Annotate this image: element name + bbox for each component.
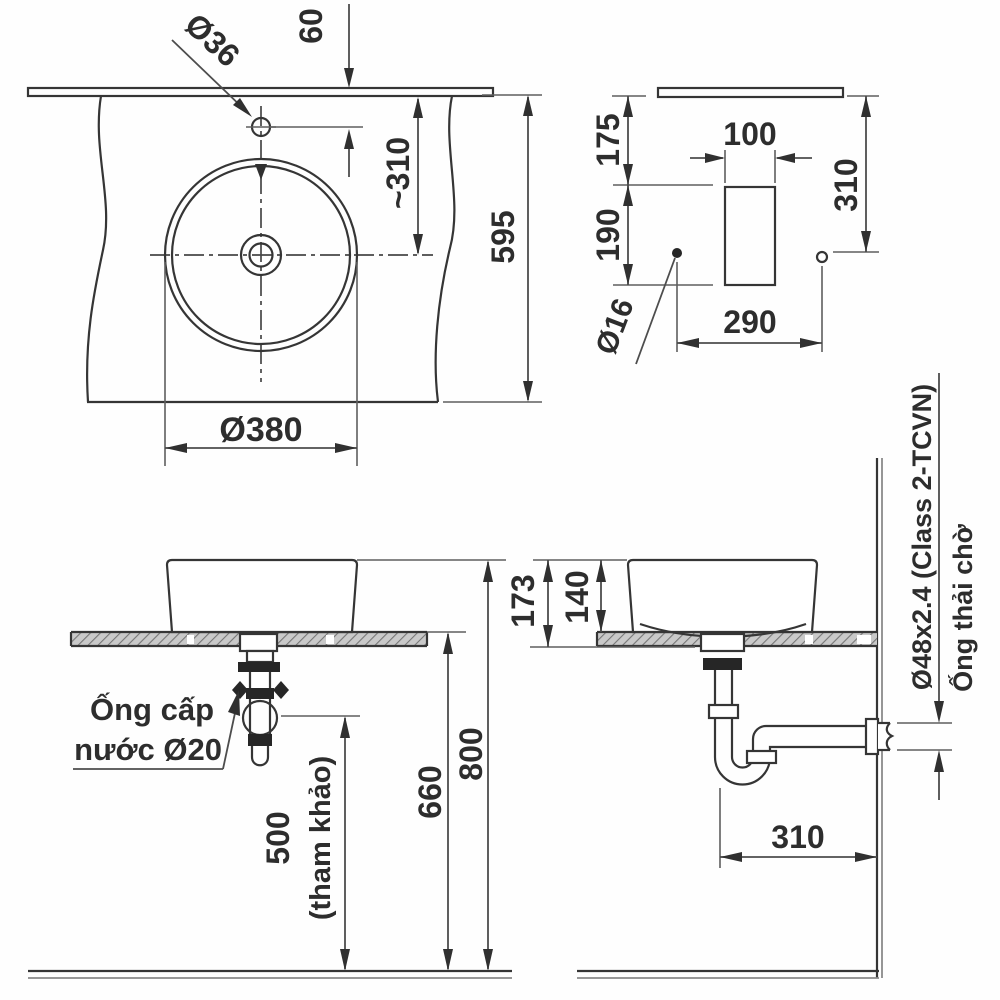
- arrow-140-down: [596, 610, 606, 632]
- leader-hole-dia: [636, 258, 675, 364]
- trap-nut-lower: [747, 751, 776, 763]
- wall-view: 175 190 100 310 290 Ø16: [590, 88, 879, 364]
- counter-edge: [28, 88, 493, 96]
- arrow-800-up: [483, 560, 493, 582]
- arrow-800-down: [483, 949, 493, 971]
- supply-label-line1: Ống cấp: [90, 691, 214, 727]
- plan-view: 60 Ø36 ~310 595 Ø380: [28, 4, 542, 466]
- drain-neck: [247, 651, 273, 662]
- arrow-595-up: [523, 95, 533, 116]
- waste-pipe-label: Ống thải chờ: [946, 523, 978, 692]
- counter-edge-wall: [658, 88, 843, 97]
- arrow-140-up: [596, 560, 606, 582]
- arrow-660-down: [443, 949, 453, 971]
- side-view: 173 140 310 Ø48x2.4 (Class 2-TCVN) Ống t…: [505, 373, 978, 978]
- dim-trap-to-wall: 310: [771, 819, 824, 855]
- supply-hole-left: [672, 248, 682, 258]
- arrow-290-right: [800, 338, 822, 348]
- arrow-380-left: [165, 443, 187, 453]
- arrow-60-down: [344, 68, 354, 88]
- supply-valve-left: [232, 681, 248, 699]
- drain-cutout: [725, 187, 775, 285]
- arrow-190-up: [623, 185, 633, 206]
- drain-flange: [240, 634, 277, 651]
- arrow-310w-down: [861, 231, 871, 252]
- supply-label-line2: nước Ø20: [74, 732, 222, 767]
- counter-joint-left: [187, 635, 194, 644]
- arrow-310s-right: [855, 852, 877, 862]
- supply-valve-right: [273, 681, 289, 699]
- dim-hole-spacing: 290: [723, 304, 776, 340]
- arrow-173-down: [543, 625, 553, 647]
- break-line-right: [436, 96, 455, 402]
- arrow-60-up: [344, 129, 354, 149]
- overflow-marker: [255, 164, 267, 180]
- tailpipe-end: [252, 746, 268, 765]
- arrow-500-down: [340, 949, 350, 971]
- arrow-290-left: [677, 338, 699, 348]
- supply-leader: [223, 713, 235, 769]
- trap-nut-upper: [709, 705, 738, 718]
- basin-front: [167, 560, 357, 632]
- wall-pipe-flange: [866, 719, 878, 754]
- tailpipe-band: [246, 688, 274, 699]
- supply-leader-arrow: [228, 690, 240, 716]
- arrow-pipe-up: [934, 750, 944, 772]
- drain-locknut: [238, 662, 280, 672]
- front-view: Ống cấp nước Ø20 500 (tham khảo) 660 800: [28, 560, 512, 978]
- arrow-660-up: [443, 632, 453, 654]
- dim-hole-offset: 60: [293, 8, 329, 44]
- arrow-100-right: [775, 153, 795, 163]
- waste-pipe-spec: Ø48x2.4 (Class 2-TCVN): [907, 384, 937, 690]
- dim-supply-height: 500: [260, 811, 296, 864]
- arrow-310w-up: [861, 96, 871, 117]
- arrow-190-down: [623, 264, 633, 285]
- dim-cutout-width: 100: [723, 116, 776, 152]
- counter-joint-right: [326, 635, 334, 644]
- dim-overall-drop: 173: [505, 574, 541, 627]
- dim-center-depth: ~310: [380, 137, 416, 209]
- counter-joint-side-a: [805, 635, 813, 644]
- trap-outlet-bottom: [770, 747, 866, 757]
- dim-counter-height: 660: [412, 765, 448, 818]
- dim-faucet-hole: Ø36: [178, 6, 247, 74]
- arrow-310-down: [413, 234, 423, 255]
- supply-hole-right: [817, 252, 827, 262]
- dim-bowl-diameter: Ø380: [219, 411, 302, 449]
- drain-locknut-side: [703, 658, 742, 670]
- dim-seg-top: 175: [590, 113, 626, 166]
- technical-drawing-page: 60 Ø36 ~310 595 Ø380: [0, 0, 1000, 1000]
- trap-ring: [243, 701, 277, 735]
- dim-seg-mid: 190: [590, 208, 626, 261]
- dim-counter-to-hole: 310: [828, 158, 864, 211]
- break-line-left: [87, 96, 106, 402]
- basin-side: [628, 560, 817, 632]
- drain-flange-side: [701, 634, 744, 651]
- dim-hole-dia: Ø16: [590, 294, 641, 359]
- arrow-310-up: [413, 97, 423, 118]
- counter-joint-side-b: [857, 635, 871, 644]
- dim-rim-height: 800: [453, 727, 489, 780]
- arrow-100-left: [705, 153, 725, 163]
- arrow-173-up: [543, 560, 553, 582]
- dim-bowl-height: 140: [559, 570, 595, 623]
- tailpipe-nut: [248, 734, 272, 746]
- sink-installation-drawing: 60 Ø36 ~310 595 Ø380: [0, 0, 1000, 1000]
- arrow-310s-left: [720, 852, 742, 862]
- arrow-pipe-down: [934, 701, 944, 723]
- arrow-380-right: [335, 443, 357, 453]
- dim-counter-depth: 595: [485, 210, 521, 263]
- arrow-500-up: [340, 716, 350, 738]
- dim-supply-height-note: (tham khảo): [305, 756, 337, 920]
- arrow-595-down: [523, 381, 533, 402]
